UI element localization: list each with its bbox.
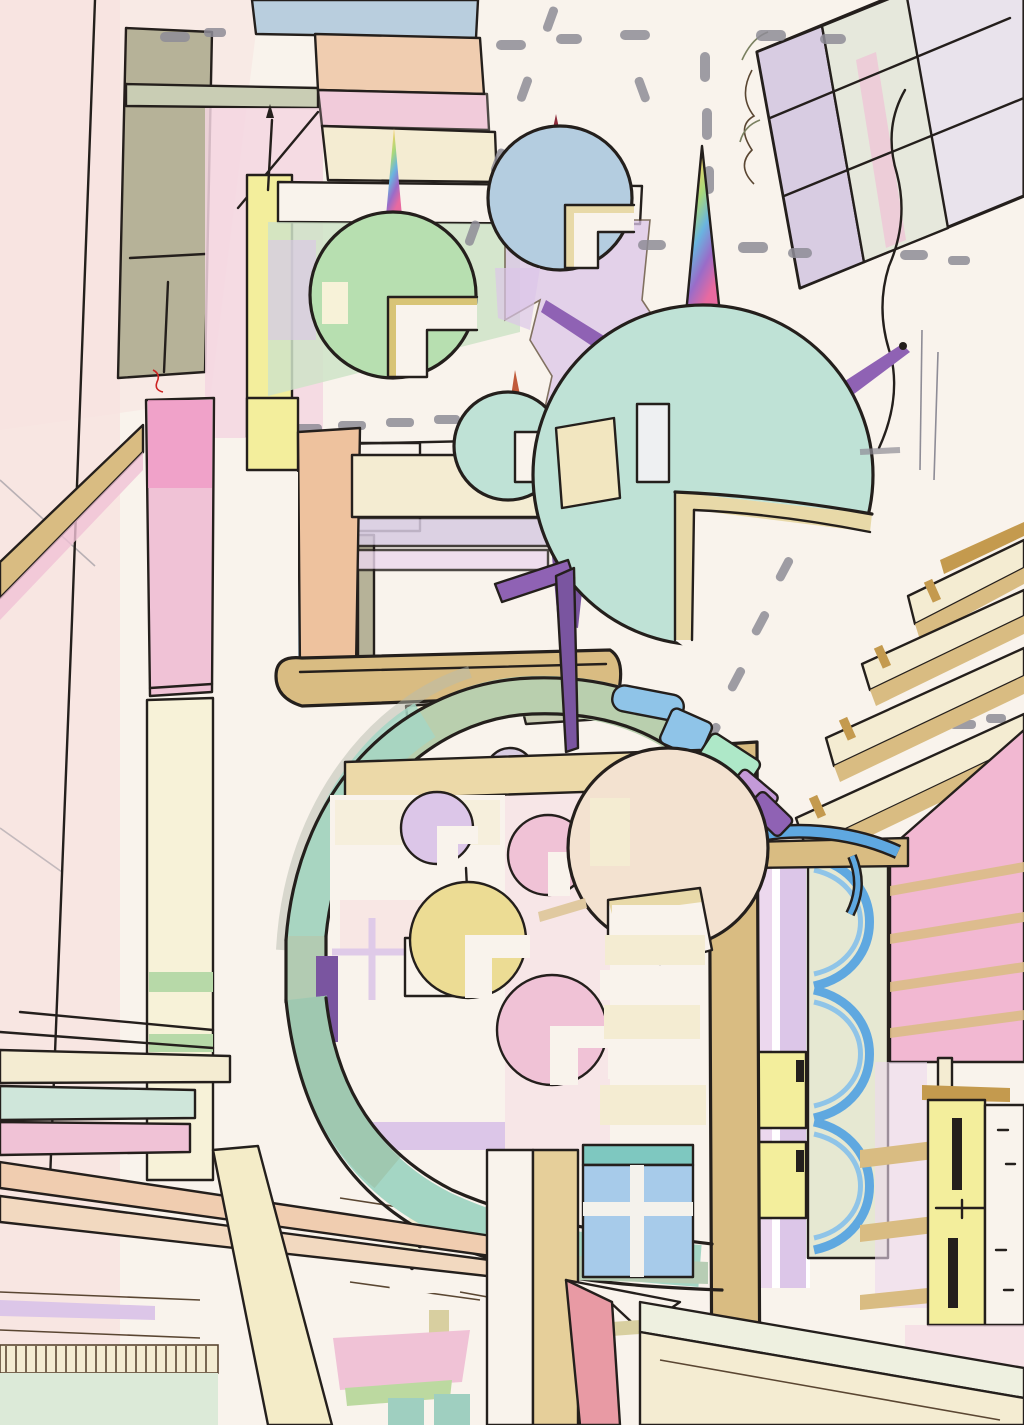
dash [638, 240, 666, 250]
pod-window-grid [322, 282, 348, 324]
stack-ledge [600, 970, 708, 1000]
pod-window-grid [590, 798, 630, 866]
pod-body [488, 126, 632, 270]
pod-window-striped [637, 404, 669, 482]
olive-column-crossbar [126, 84, 318, 108]
pod-window-grid [556, 418, 620, 508]
green-tint-ground [0, 1373, 218, 1425]
teal-window-header [583, 1145, 693, 1165]
dash [900, 250, 928, 260]
dash [738, 242, 768, 253]
teal-column [388, 1398, 424, 1425]
teal-ledge [0, 1086, 195, 1120]
cream-slab [322, 126, 497, 182]
tower-chimney [938, 1058, 952, 1090]
beam-zone-bg [875, 1062, 927, 1308]
dash [496, 40, 526, 50]
dash-vertical [700, 52, 710, 82]
sketch-page [0, 0, 1024, 1425]
panel-slot [796, 1060, 804, 1082]
tower-slot [952, 1118, 962, 1190]
apricot-column [298, 428, 360, 672]
peach-slab [315, 34, 484, 94]
dash [434, 415, 460, 424]
dash [160, 32, 190, 42]
lavender-beam [345, 518, 548, 546]
white-column [487, 1150, 533, 1425]
dash [756, 30, 786, 41]
blue-slab [252, 0, 478, 38]
white-tower [985, 1105, 1024, 1325]
dash [820, 34, 846, 44]
teal-column [434, 1394, 470, 1425]
rose-ledge [0, 1122, 190, 1155]
stack-ledge [612, 905, 700, 931]
lavender-beam-2 [345, 550, 548, 570]
pink-column-top [148, 400, 212, 488]
dash-vertical [702, 108, 712, 140]
yellow-patch [247, 398, 298, 470]
dash [948, 256, 970, 265]
hatch-strokes [6, 1346, 206, 1372]
green-band [149, 972, 213, 992]
drawing-canvas [0, 0, 1024, 1425]
dash [788, 248, 812, 258]
gray-tick [860, 450, 900, 452]
dash [620, 30, 650, 40]
tower-slot [948, 1238, 958, 1308]
window-mullion-v [630, 1165, 644, 1277]
stack-ledge [605, 935, 705, 965]
pancake-stack [600, 905, 708, 1125]
stack-ledge [604, 1005, 700, 1039]
cream-ledge [0, 1050, 230, 1083]
panel-slot [796, 1150, 804, 1172]
dash [386, 418, 414, 427]
stack-ledge [600, 1085, 706, 1125]
rose-slab [318, 90, 489, 130]
dash [986, 714, 1006, 723]
antenna-tip-dot [899, 342, 907, 350]
stack-ledge [608, 1045, 702, 1079]
dash [204, 28, 226, 37]
dash [556, 34, 582, 44]
